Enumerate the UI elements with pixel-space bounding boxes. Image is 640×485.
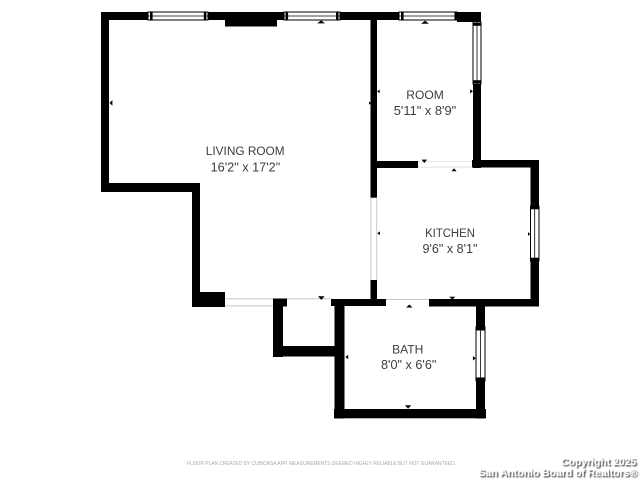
svg-text:5'11" x 8'9": 5'11" x 8'9" [394,103,457,118]
svg-text:16'2" x 17'2": 16'2" x 17'2" [211,159,281,174]
svg-text:8'0" x 6'6": 8'0" x 6'6" [381,357,437,372]
svg-text:LIVING ROOM: LIVING ROOM [206,144,285,158]
svg-text:Copyright 2025: Copyright 2025 [561,457,636,468]
svg-text:ROOM: ROOM [406,88,444,102]
svg-text:KITCHEN: KITCHEN [425,226,475,240]
svg-text:9'6" x 8'1": 9'6" x 8'1" [423,241,478,256]
svg-text:FLOOR PLAN CREATED BY CUBICASA: FLOOR PLAN CREATED BY CUBICASA APP. MEAS… [187,461,456,467]
svg-text:San Antonio Board of Realtors®: San Antonio Board of Realtors® [478,468,637,479]
svg-text:BATH: BATH [392,343,423,357]
